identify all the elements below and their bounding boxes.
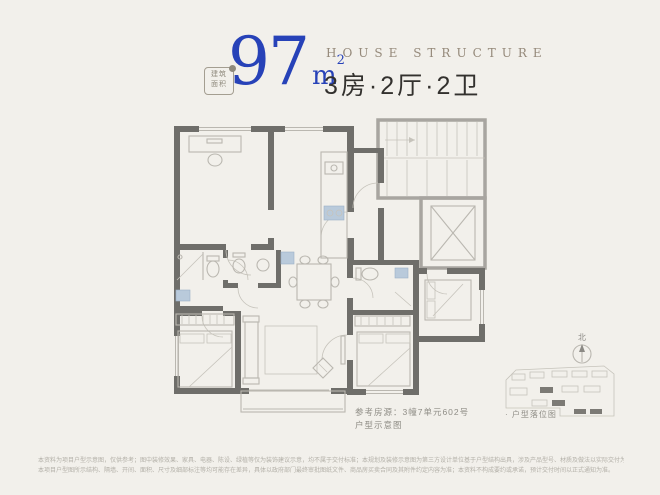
disclaimer-line1: 本资料为项目户型示意图，仅供参考；图中装修效果、家具、电器、陈设、绿植等仅为装饰…	[38, 456, 624, 466]
wardrobe-icon	[355, 316, 410, 326]
disclaimer: 本资料为项目户型示意图，仅供参考；图中装修效果、家具、电器、陈设、绿植等仅为装饰…	[38, 456, 624, 476]
bedroom-2	[425, 280, 471, 320]
disclaimer-line2: 本项目户型图所示结构、隔墙、开间、面积、尺寸及细部标注等均可能存在差异，具体以政…	[38, 466, 624, 476]
toilet-icon	[207, 256, 219, 261]
reference-line2: 户型示意图	[355, 419, 469, 432]
stairwell	[378, 120, 485, 198]
living-room	[243, 316, 345, 384]
washer-icon	[281, 252, 294, 264]
dining-table-icon	[289, 256, 339, 308]
site-plan-caption: · 户型落位图	[505, 409, 557, 420]
north-label: 北	[578, 333, 586, 342]
page: 建筑 面积 97m2 HOUSE STRUCTURE 3房·2厅·2卫	[0, 0, 660, 495]
site-plan: 北	[498, 328, 638, 420]
site-buildings	[510, 371, 607, 414]
kitchen-counter-icon	[321, 152, 347, 258]
balcony	[241, 390, 345, 412]
toilet-icon	[233, 253, 245, 257]
bed-icon	[178, 331, 232, 387]
reference-line1: 参考房源：3幢7单元602号	[355, 406, 469, 419]
bathroom-3	[356, 268, 411, 306]
highlighted-building	[552, 400, 565, 406]
elevator-shaft	[421, 198, 485, 268]
floor-plan	[163, 110, 498, 422]
master-bathroom	[176, 252, 219, 301]
tv-icon	[341, 336, 345, 364]
highlighted-building	[574, 409, 586, 414]
bedroom-3	[355, 316, 410, 386]
north-arrow-icon: 北	[573, 333, 591, 363]
study-desk-icon	[189, 136, 241, 166]
master-bedroom	[176, 314, 234, 387]
sink-icon	[176, 290, 190, 301]
sink-icon	[257, 259, 269, 271]
sink-icon	[395, 268, 408, 278]
highlighted-building	[590, 409, 602, 414]
guest-bathroom	[233, 252, 294, 273]
rug-icon	[265, 326, 317, 374]
sofa-icon	[245, 322, 258, 378]
title-english: HOUSE STRUCTURE	[326, 46, 548, 60]
title-rooms: 3房·2厅·2卫	[324, 66, 481, 102]
reference-note: 参考房源：3幢7单元602号 户型示意图	[355, 406, 469, 432]
bed-icon	[357, 332, 410, 386]
header: 建筑 面积 97m2 HOUSE STRUCTURE 3房·2厅·2卫	[0, 0, 660, 110]
highlighted-building	[540, 387, 553, 393]
